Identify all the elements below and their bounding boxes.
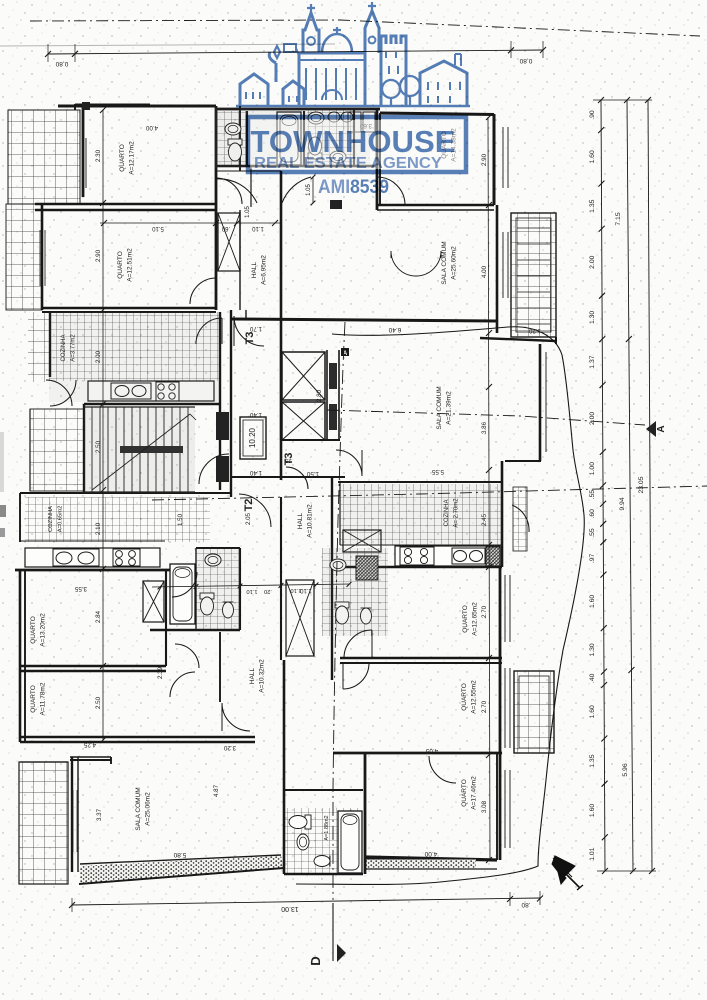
svg-text:2.30: 2.30 [95,149,102,162]
svg-text:1.37: 1.37 [589,355,596,368]
svg-text:4.87: 4.87 [213,784,220,797]
svg-text:3.86: 3.86 [481,421,488,434]
svg-text:1.60: 1.60 [589,705,596,718]
svg-text:3.08: 3.08 [481,800,488,813]
svg-text:QUARTO: QUARTO [117,251,124,279]
svg-text:9.94: 9.94 [619,497,626,510]
svg-text:2.50: 2.50 [95,696,102,709]
svg-text:A=25.60m2: A=25.60m2 [451,246,458,280]
svg-text:HALL: HALL [249,667,256,684]
svg-text:.90: .90 [589,110,596,120]
svg-text:4.00: 4.00 [424,850,437,857]
svg-text:SALA COMUM: SALA COMUM [135,787,142,830]
svg-text:A=12.65m2: A=12.65m2 [472,602,479,636]
svg-text:T3: T3 [244,332,256,345]
svg-text:2.90: 2.90 [95,249,102,262]
svg-text:2.90: 2.90 [481,153,488,166]
svg-text:A=17.46m2: A=17.46m2 [471,776,478,810]
svg-text:QUARTO: QUARTO [30,616,37,644]
svg-text:1.10: 1.10 [246,588,257,594]
svg-text:A=11.78m2: A=11.78m2 [40,682,47,715]
svg-text:1.20: 1.20 [528,327,541,334]
svg-text:1.30: 1.30 [589,311,596,324]
svg-text:A=21.39m2: A=21.39m2 [446,391,453,425]
svg-text:.97: .97 [589,553,596,563]
svg-text:5.10: 5.10 [152,225,164,231]
svg-text:T2: T2 [243,499,255,512]
svg-text:1.60: 1.60 [589,150,596,163]
svg-text:5.96: 5.96 [622,763,629,776]
svg-text:1.10: 1.10 [290,587,301,593]
svg-text:TOWNHOUSE: TOWNHOUSE [251,124,456,159]
svg-text:QUARTO: QUARTO [461,779,468,807]
svg-text:2.10: 2.10 [95,522,102,535]
svg-text:SALA COMUM: SALA COMUM [436,386,443,429]
svg-text:5.55: 5.55 [431,468,444,475]
svg-text:1.70: 1.70 [249,325,262,332]
svg-text:1.35: 1.35 [589,754,596,767]
svg-text:1.00: 1.00 [589,462,596,475]
svg-text:1.60: 1.60 [589,595,596,608]
svg-text:A=0.65m2: A=0.65m2 [58,506,64,533]
svg-text:1.60: 1.60 [589,804,596,817]
svg-text:QUARTO: QUARTO [461,683,468,711]
svg-text:A=13.20m2: A=13.20m2 [40,613,47,647]
svg-text:3.55: 3.55 [74,585,87,592]
svg-text:A=10.32m2: A=10.32m2 [259,659,266,693]
svg-text:1.30: 1.30 [589,643,596,656]
svg-text:.40: .40 [589,673,596,683]
svg-text:4.00: 4.00 [145,124,158,131]
svg-text:4.05: 4.05 [425,747,438,754]
svg-text:1.05: 1.05 [245,206,251,218]
svg-text:3.20: 3.20 [223,744,236,751]
svg-text:4.25: 4.25 [83,741,96,748]
svg-text:1.01: 1.01 [589,847,596,860]
svg-text:2.00: 2.00 [589,412,596,425]
svg-text:1.05: 1.05 [306,184,312,196]
svg-text:.55: .55 [589,528,596,538]
svg-text:.55: .55 [589,490,596,500]
svg-text:QUARTO: QUARTO [30,685,37,713]
svg-text:2.70: 2.70 [481,700,488,713]
svg-text:A=25.06m2: A=25.06m2 [145,792,152,826]
svg-text:1.40: 1.40 [249,469,262,476]
svg-text:.20: .20 [264,588,272,594]
svg-text:A=12.55m2: A=12.55m2 [471,680,478,714]
svg-text:6.40: 6.40 [388,326,401,333]
svg-text:A=12.51m2: A=12.51m2 [127,248,134,282]
svg-text:1.10: 1.10 [300,587,312,593]
svg-text:23.05: 23.05 [638,476,645,493]
svg-text:HALL: HALL [251,261,258,278]
svg-text:A: A [656,425,667,432]
svg-text:HALL: HALL [297,512,304,529]
svg-text:A=10.81m2: A=10.81m2 [307,504,314,538]
svg-text:T3: T3 [283,453,295,466]
svg-text:7.15: 7.15 [615,212,622,225]
svg-text:SALA COMUM: SALA COMUM [441,241,448,284]
svg-text:D: D [308,956,323,965]
svg-text:1.35: 1.35 [589,199,596,212]
svg-text:A=12.17m2: A=12.17m2 [129,141,136,175]
svg-text:COZINHA: COZINHA [48,506,54,532]
svg-text:5.80: 5.80 [173,851,186,858]
svg-text:3.37: 3.37 [96,808,103,821]
svg-text:.60: .60 [221,225,230,231]
svg-text:1.50: 1.50 [177,513,184,526]
svg-text:2.70: 2.70 [481,605,488,618]
svg-text:2.05: 2.05 [245,512,252,525]
svg-text:AMI8539: AMI8539 [318,177,389,198]
svg-text:REAL ESTATE AGENCY: REAL ESTATE AGENCY [254,155,443,172]
svg-text:4.00: 4.00 [481,265,488,278]
svg-text:2.00: 2.00 [589,255,596,268]
svg-text:13.00: 13.00 [281,905,299,912]
svg-text:10.20: 10.20 [248,427,257,448]
svg-text:.80: .80 [521,901,530,908]
svg-text:1.50: 1.50 [306,470,319,477]
svg-text:QUARTO: QUARTO [119,144,126,172]
svg-text:0,80: 0,80 [519,57,532,64]
svg-text:QUARTO: QUARTO [462,605,469,633]
svg-text:2.39: 2.39 [157,666,164,679]
svg-text:1.10: 1.10 [252,225,264,231]
svg-text:A=6.95m2: A=6.95m2 [261,255,268,285]
svg-text:A=1.88m2: A=1.88m2 [324,815,330,840]
svg-text:0,80: 0,80 [55,60,68,67]
svg-text:2.84: 2.84 [95,610,102,623]
svg-text:.60: .60 [589,509,596,519]
svg-text:2.80: 2.80 [316,389,323,402]
